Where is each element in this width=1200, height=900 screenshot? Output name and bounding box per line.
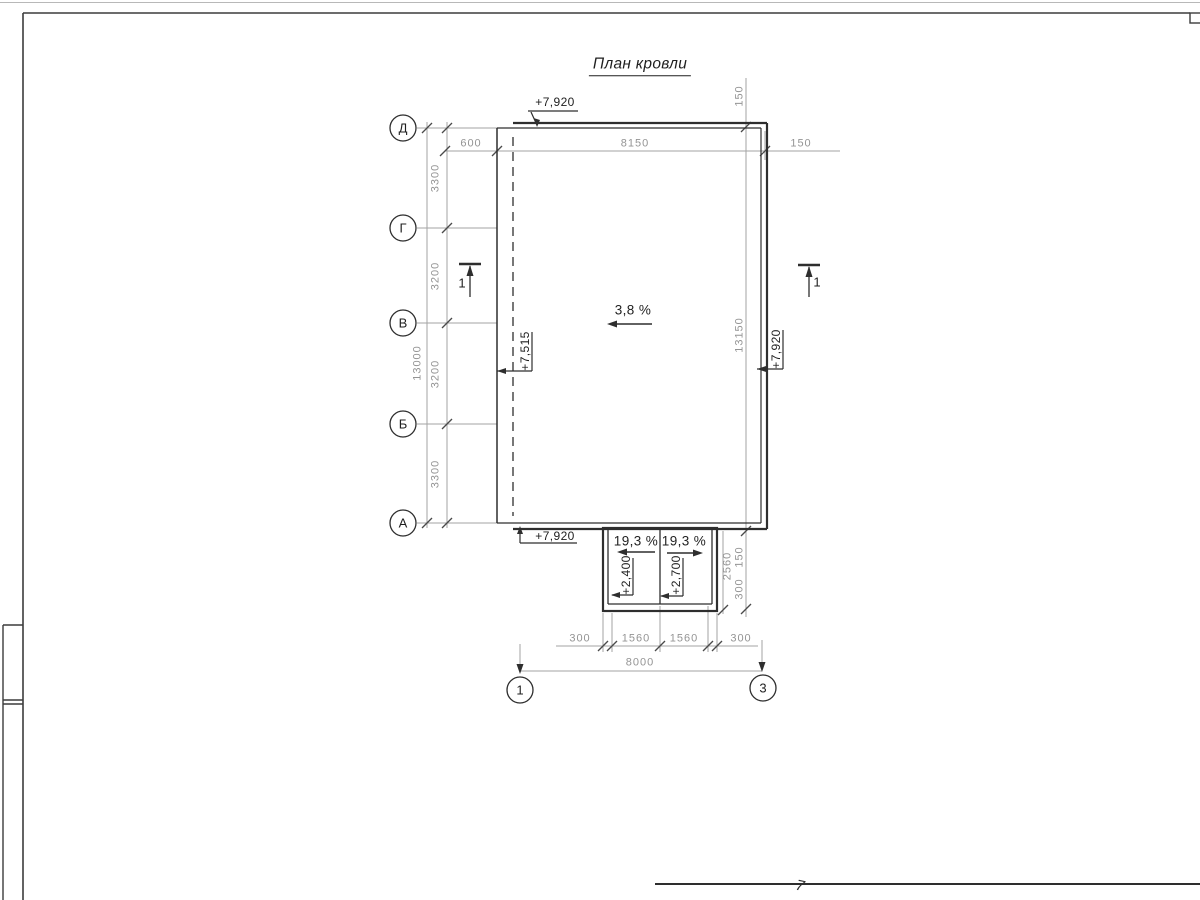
slope-label-main: 3,8 %: [615, 303, 652, 317]
page-title: План кровли: [589, 56, 691, 76]
grid-axis-label-g: Г: [399, 222, 406, 235]
drawing-sheet: План кровли Д Г В Б А 1 3 1 1 600 8150 1…: [0, 0, 1200, 900]
dim-bottom-300-l: 300: [569, 634, 590, 645]
dim-bottom-1560-r: 1560: [670, 634, 698, 645]
elevation-roof-top: +7,920: [535, 96, 574, 108]
slope-arrows: [607, 321, 703, 557]
dim-left-3200-1: 3200: [431, 262, 442, 290]
grid-axis-label-3: 3: [759, 682, 766, 695]
dim-bottom-1560-l: 1560: [622, 634, 650, 645]
slope-label-canopy-right: 19,3 %: [662, 534, 706, 548]
dim-top-150: 150: [790, 139, 811, 150]
dim-top-8150: 8150: [621, 139, 649, 150]
grid-axis-label-v: В: [399, 317, 408, 330]
dim-right-2560: 2560: [723, 552, 734, 580]
grid-axis-label-a: А: [399, 517, 408, 530]
elevation-roof-bottom: +7,920: [535, 530, 574, 542]
elevation-roof-right: +7,920: [770, 329, 782, 368]
elevation-roof-left: +7,515: [519, 331, 531, 370]
dim-right-low-300: 300: [735, 578, 746, 599]
roof-plan-linework: [0, 0, 1200, 900]
dim-bottom-300-r: 300: [730, 634, 751, 645]
slope-label-canopy-left: 19,3 %: [614, 534, 658, 548]
elevation-canopy-right: +2,700: [670, 555, 682, 594]
grid-axis-label-d: Д: [399, 122, 408, 135]
dim-left-3300-2: 3300: [431, 460, 442, 488]
dim-bottom-total-8000: 8000: [626, 658, 654, 669]
dim-right-low-150: 150: [735, 546, 746, 567]
main-roof-outline: [497, 123, 767, 529]
section-number-left: 1: [458, 277, 465, 290]
elevation-leaders: [497, 111, 783, 599]
dim-right-total-13150: 13150: [735, 317, 746, 353]
grid-axis-label-1: 1: [516, 684, 523, 697]
grid-axis-label-b: Б: [399, 418, 408, 431]
dim-left-total-13000: 13000: [413, 345, 424, 381]
dim-top-600: 600: [460, 139, 481, 150]
dim-left-3200-2: 3200: [431, 360, 442, 388]
elevation-canopy-left: +2,400: [620, 555, 632, 594]
section-number-right: 1: [813, 276, 820, 289]
sheet-frame: [0, 3, 1200, 900]
dim-right-top-150: 150: [735, 85, 746, 106]
dim-left-3300-1: 3300: [431, 164, 442, 192]
